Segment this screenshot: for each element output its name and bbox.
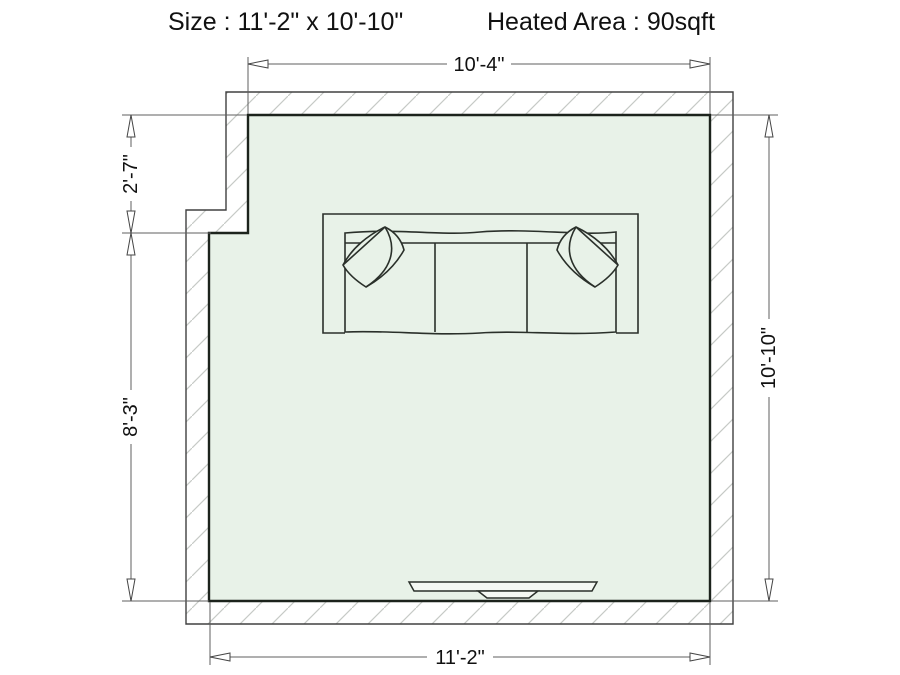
arrowhead-left — [210, 653, 230, 661]
arrowhead-right — [690, 653, 710, 661]
arrowhead-down — [765, 579, 773, 601]
dimension-label-right: 10'-10" — [758, 327, 780, 389]
room-floor — [209, 115, 710, 601]
dimension-label-bottom: 11'-2" — [435, 647, 484, 669]
dimension-label-left-lower: 8'-3" — [120, 397, 142, 437]
room-size-title: Size : 11'-2" x 10'-10" — [168, 8, 403, 37]
dimension-label-top: 10'-4" — [454, 54, 505, 76]
arrowhead-left — [248, 60, 268, 68]
arrowhead-down — [127, 579, 135, 601]
heated-area-title: Heated Area : 90sqft — [487, 8, 715, 37]
arrowhead-up — [127, 115, 135, 137]
tv-stand — [478, 591, 538, 598]
floor-plan-canvas: Size : 11'-2" x 10'-10" Heated Area : 90… — [0, 0, 900, 675]
arrowhead-down — [127, 211, 135, 233]
arrowhead-up — [127, 233, 135, 255]
dimension-label-left-upper: 2'-7" — [120, 154, 142, 194]
tv-body — [409, 582, 597, 591]
floor-plan-drawing: 10'-4" 2'-7" 8'-3" — [0, 0, 900, 675]
arrowhead-up — [765, 115, 773, 137]
arrowhead-right — [690, 60, 710, 68]
